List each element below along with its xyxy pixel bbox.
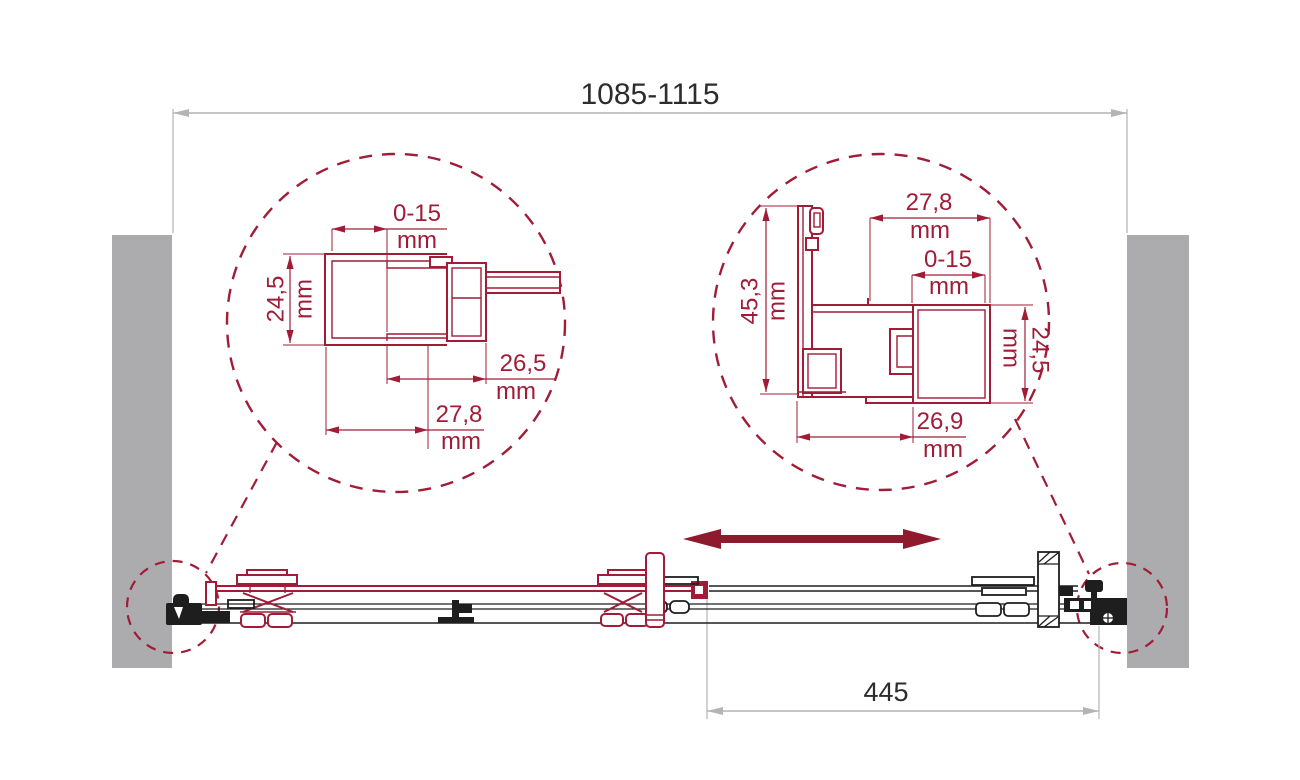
profile-hook [810, 208, 823, 234]
left-detail-leader-line [206, 442, 277, 573]
roller-wheel [241, 614, 265, 627]
door-profile-top-lip [868, 298, 913, 305]
drawing-canvas: 1085-1115 0-15 mm 24,5 mm [0, 0, 1300, 780]
slide-direction-arrow [683, 529, 941, 549]
dim-label: 24,5 [263, 276, 290, 323]
carriage-plate-upper [608, 570, 648, 575]
dim-label: 45,3 [737, 278, 764, 325]
right-dim-0-15: 0-15 mm [912, 246, 985, 303]
end-cap-slot [695, 586, 703, 594]
opening-width-label: 445 [863, 677, 908, 707]
bracket-slot [1084, 601, 1091, 609]
right-dim-24-5: mm 24,5 [985, 305, 1054, 403]
dim-label: 24,5 [1027, 327, 1054, 374]
profile-notch [806, 238, 818, 250]
roller-wheel [976, 603, 1001, 616]
right-wall [1127, 235, 1189, 668]
dim-label: 27,8 [906, 189, 953, 216]
carriage-plate [237, 575, 297, 584]
left-detail-profile-section [325, 254, 560, 345]
dim-label: 27,8 [436, 401, 483, 428]
carriage-plate [972, 577, 1034, 585]
wall-profile-inner [332, 261, 447, 338]
door-track-assembly [166, 552, 1127, 627]
roller-wheel [268, 614, 292, 627]
door-profile-outer [913, 305, 990, 403]
left-wall [112, 235, 172, 668]
dim-unit: mm [923, 436, 963, 463]
carriage-plate-lower [982, 588, 1026, 595]
dim-unit: mm [764, 281, 791, 321]
roller-wheel [601, 614, 623, 626]
guide-step [459, 604, 472, 613]
shower-door-technical-drawing: 1085-1115 0-15 mm 24,5 mm [0, 0, 1300, 780]
overall-width-dimension: 1085-1115 [173, 78, 1127, 233]
dim-label: 26,5 [500, 350, 547, 377]
roller-carriage-left [237, 570, 297, 627]
door-stopper [646, 553, 664, 627]
roller-wheel [626, 614, 648, 626]
left-dim-27-8: 27,8 mm [326, 345, 484, 455]
glass-panel-section [486, 272, 560, 293]
dim-unit: mm [441, 428, 481, 455]
right-detail-profile-section [798, 206, 990, 403]
dim-label: 0-15 [924, 246, 972, 273]
bracket-slot [1070, 601, 1079, 609]
guide-wheel [670, 601, 689, 613]
right-detail-leader-line [1015, 419, 1089, 574]
profile-chamber [803, 349, 841, 393]
roller-wheel [1004, 603, 1029, 616]
bracket-cap [1085, 580, 1103, 592]
left-dim-26-5: 26,5 mm [387, 343, 556, 405]
dim-label: 0-15 [393, 200, 441, 227]
guide-foot [438, 617, 474, 623]
bracket-base [202, 611, 230, 623]
dim-label: 26,9 [917, 408, 964, 435]
dim-unit: mm [291, 279, 318, 319]
right-dim-26-9: 26,9 mm [797, 401, 966, 463]
panel-end-profile [206, 582, 216, 605]
roller-carriage-right [972, 552, 1073, 627]
right-dim-45-3: 45,3 mm [737, 206, 799, 394]
dim-unit: mm [998, 328, 1025, 368]
carriage-plate-upper [247, 570, 287, 575]
overall-width-label: 1085-1115 [580, 78, 719, 111]
door-profile-outer [447, 263, 486, 341]
axle-bolt [1059, 586, 1073, 596]
dim-unit: mm [397, 227, 437, 254]
dim-unit: mm [910, 217, 950, 244]
dim-unit: mm [929, 273, 969, 300]
bracket-body [166, 603, 202, 625]
bracket-stem [1091, 592, 1097, 599]
dim-unit: mm [496, 378, 536, 405]
left-dim-24-5: 24,5 mm [263, 254, 326, 345]
